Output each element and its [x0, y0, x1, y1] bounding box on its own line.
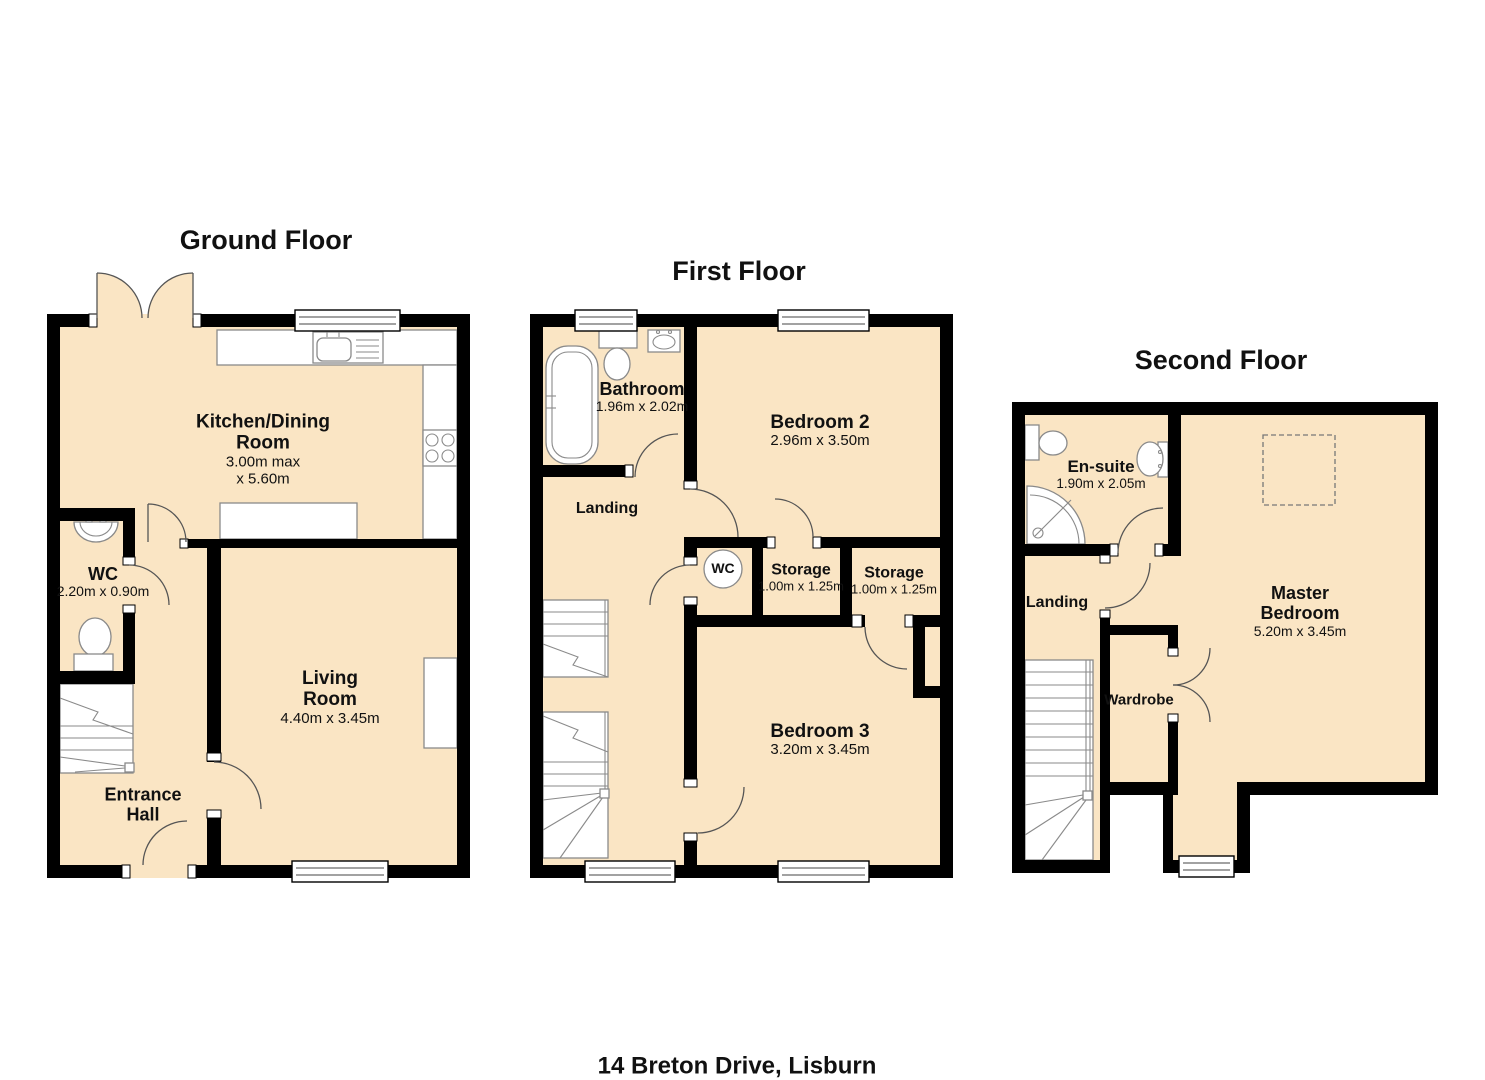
door-jamb [180, 539, 188, 548]
door-jamb [207, 810, 221, 818]
window [778, 861, 869, 882]
wall-segment [1012, 402, 1438, 415]
storage2-label: Storage 1.00m x 1.25m [851, 565, 937, 598]
wall-segment [457, 314, 470, 878]
door-jamb [684, 557, 697, 565]
room-name: Entrance [104, 785, 181, 805]
chimney-recess-wall [913, 686, 940, 698]
living-room-label: Living Room 4.40m x 3.45m [280, 668, 379, 728]
first-staircase-upper [543, 600, 608, 677]
void-cutout [1250, 795, 1445, 885]
room-name: Storage [851, 565, 937, 583]
property-address: 14 Breton Drive, Lisburn [598, 1052, 877, 1079]
door-jamb [852, 615, 862, 627]
ensuite-label: En-suite 1.90m x 2.05m [1056, 457, 1145, 491]
first-staircase-lower [543, 712, 609, 858]
first-landing-label: Landing [576, 500, 638, 518]
room-dims: 2.96m x 3.50m [770, 433, 869, 450]
window [585, 861, 675, 882]
room-dims: 1.90m x 2.05m [1056, 476, 1145, 491]
ground-floor-title: Ground Floor [180, 225, 352, 256]
wall-segment [1425, 402, 1438, 795]
kitchen-island [220, 503, 357, 539]
door-jamb [1110, 544, 1118, 556]
wall-segment [1012, 402, 1025, 873]
room-name: Living [280, 668, 379, 689]
wall-segment [1100, 625, 1178, 635]
door-jamb [207, 753, 221, 761]
master-bedroom-label: Master Bedroom 5.20m x 3.45m [1254, 583, 1347, 639]
wall-segment [543, 465, 633, 477]
room-name: Bedroom 3 [770, 721, 869, 742]
door-jamb [1100, 610, 1110, 618]
room-name: En-suite [1056, 457, 1145, 476]
door-jamb [813, 537, 821, 548]
wall-segment [60, 508, 135, 521]
wall-segment [188, 539, 457, 548]
wall-segment [530, 314, 543, 878]
wardrobe-label: Wardrobe [1104, 693, 1173, 710]
first-floor-title: First Floor [672, 256, 806, 287]
door-jamb [1168, 648, 1178, 656]
floorplan-drawing [0, 0, 1485, 1080]
wc-circle-label: WC [711, 561, 734, 577]
wall-segment [940, 314, 953, 878]
room-name: Room [280, 690, 379, 711]
wall-segment [1168, 722, 1178, 782]
room-name: Master [1254, 583, 1347, 603]
window [295, 310, 400, 331]
door-jamb [767, 537, 775, 548]
wall-segment [684, 615, 865, 627]
door-jamb [1100, 555, 1110, 563]
window [778, 310, 869, 331]
kitchen-label: Kitchen/Dining Room 3.00m max x 5.60m [196, 412, 330, 489]
door-jamb [625, 465, 633, 477]
wall-segment [1025, 544, 1110, 556]
ground-staircase [60, 684, 134, 773]
french-door-swing-area-left [97, 273, 142, 318]
wall-segment [1012, 860, 1110, 873]
door-jamb [89, 314, 97, 327]
fireplace [424, 658, 457, 748]
bedroom2-label: Bedroom 2 2.96m x 3.50m [770, 412, 869, 450]
void-cutout [1110, 795, 1163, 875]
door-jamb [1155, 544, 1163, 556]
room-name: Bathroom [596, 379, 689, 399]
bedroom3-label: Bedroom 3 3.20m x 3.45m [770, 721, 869, 759]
storage1-label: Storage 1.00m x 1.25m [758, 562, 844, 595]
room-dims: 1.96m x 2.02m [596, 399, 689, 415]
room-dims: 3.00m max [196, 455, 330, 472]
wall-segment [1163, 795, 1173, 860]
room-dims: 1.00m x 1.25m [851, 583, 937, 598]
second-floor-title: Second Floor [1135, 345, 1308, 376]
door-jamb [684, 833, 697, 841]
door-jamb [188, 865, 196, 878]
second-staircase [1025, 660, 1093, 860]
wall-segment [684, 537, 775, 548]
room-dims: 5.20m x 3.45m [1254, 623, 1347, 639]
door-jamb [905, 615, 913, 627]
door-jamb [684, 779, 697, 787]
wall-segment [684, 627, 697, 787]
door-jamb [684, 481, 697, 489]
room-name: Room [196, 433, 330, 454]
room-name: Kitchen/Dining [196, 412, 330, 433]
door-jamb [122, 865, 130, 878]
window [1179, 856, 1234, 877]
wall-segment [60, 671, 135, 684]
room-dims: 1.00m x 1.25m [758, 580, 844, 595]
window [575, 310, 637, 331]
bathroom-basin-icon [648, 330, 680, 352]
room-name: Bedroom [1254, 603, 1347, 623]
door-jamb [123, 605, 135, 613]
wall-segment [1168, 635, 1178, 648]
room-name: Hall [104, 805, 181, 825]
kitchen-sink-icon [313, 332, 383, 363]
floorplan-page: Ground Floor First Floor Second Floor 14… [0, 0, 1485, 1080]
wall-segment [1100, 782, 1178, 795]
door-jamb [684, 597, 697, 605]
room-dims: 2.20m x 0.90m [57, 584, 150, 600]
wall-segment [1100, 610, 1110, 873]
wall-segment [1168, 415, 1181, 556]
hob-icon [423, 430, 457, 466]
entrance-hall-label: Entrance Hall [104, 785, 181, 826]
bath-icon [546, 346, 598, 464]
second-landing-label: Landing [1026, 594, 1088, 612]
wc-label: WC 2.20m x 0.90m [57, 564, 150, 600]
window [292, 861, 388, 882]
bathroom-label: Bathroom 1.96m x 2.02m [596, 379, 689, 415]
room-dims: 3.20m x 3.45m [770, 742, 869, 759]
room-name: Bedroom 2 [770, 412, 869, 433]
room-dims: 4.40m x 3.45m [280, 711, 379, 728]
door-jamb [1168, 714, 1178, 722]
french-door-swing-area-right [148, 273, 193, 318]
room-dims: x 5.60m [196, 471, 330, 488]
room-name: WC [57, 564, 150, 584]
wall-segment [813, 537, 940, 548]
wall-segment [1237, 795, 1250, 873]
door-jamb [193, 314, 201, 327]
room-name: Storage [758, 562, 844, 580]
wall-segment [1237, 782, 1438, 795]
wall-segment [207, 548, 221, 762]
